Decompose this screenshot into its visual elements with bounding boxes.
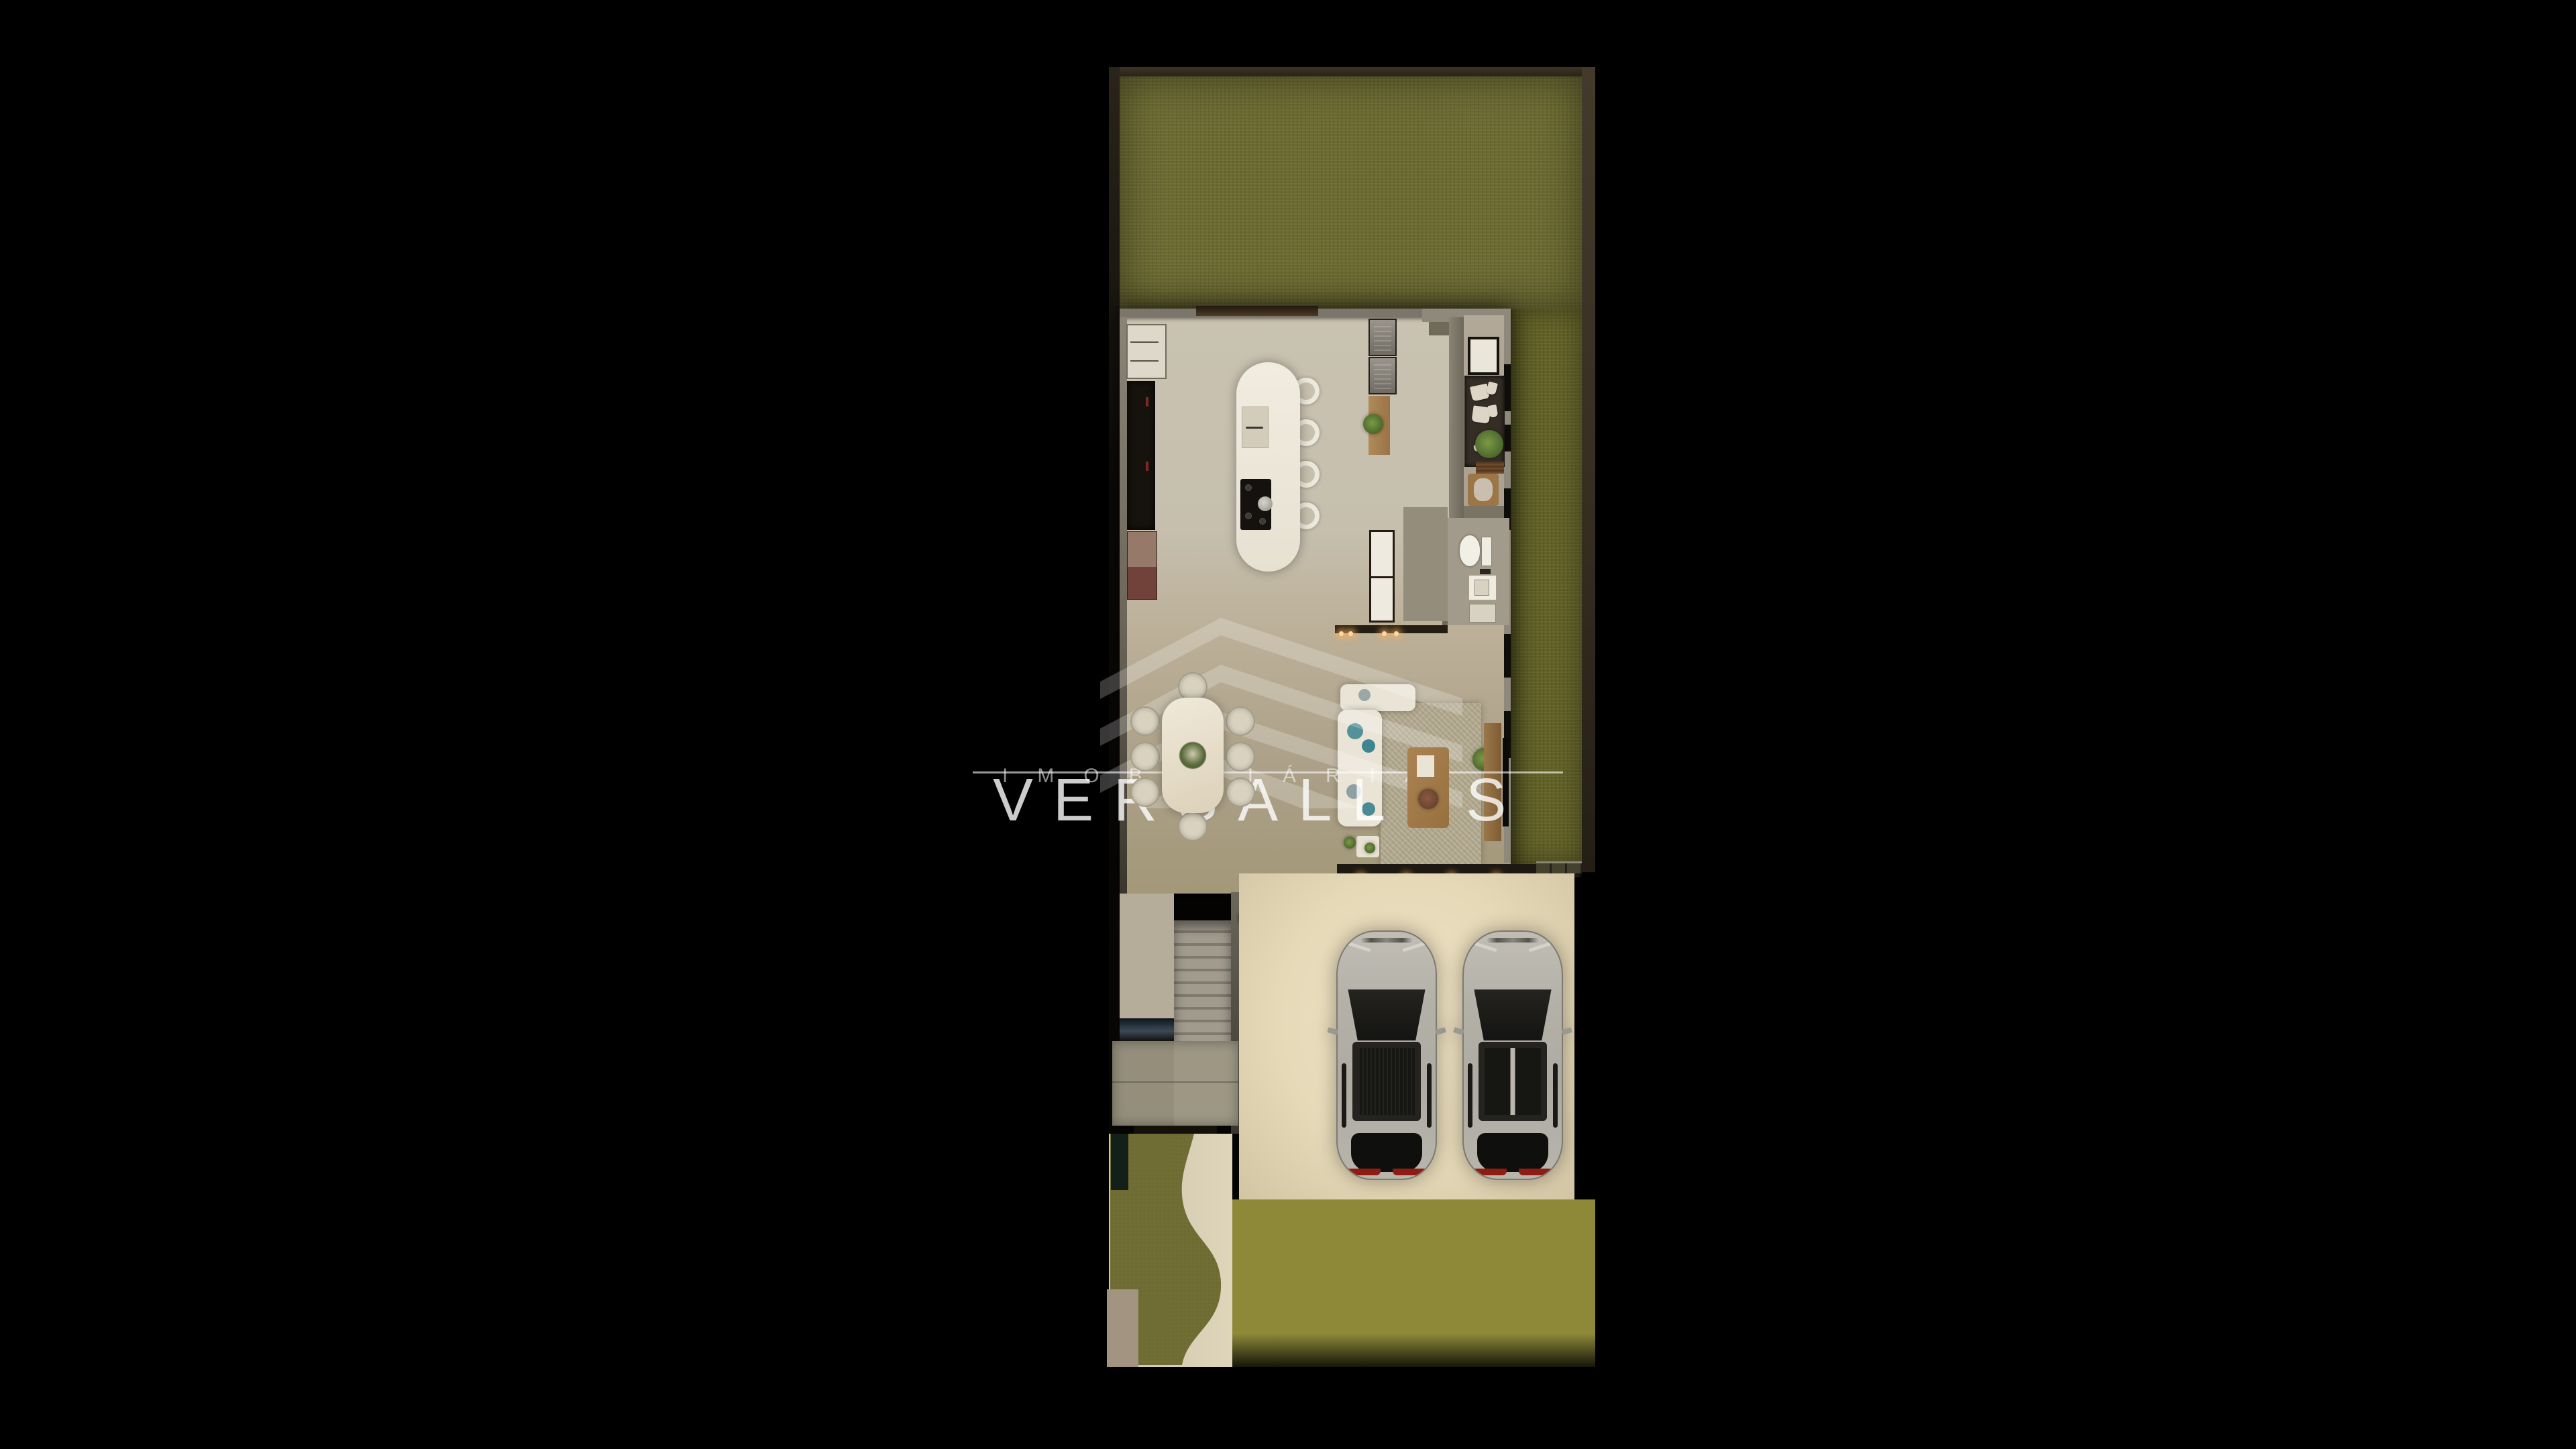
stair-landing xyxy=(1112,1041,1238,1126)
car-right xyxy=(1462,930,1563,1180)
car-body xyxy=(1336,930,1437,1180)
side-plant xyxy=(1364,843,1375,853)
car-body xyxy=(1462,930,1563,1180)
headlight xyxy=(1528,942,1552,953)
headlight xyxy=(1402,942,1426,953)
dining-chair xyxy=(1226,706,1255,736)
corridor-sink xyxy=(1468,474,1499,506)
dining-chair xyxy=(1130,706,1160,736)
backyard-lawn xyxy=(1120,76,1582,309)
oven-upper xyxy=(1368,319,1397,356)
stair-glass-band xyxy=(1120,1018,1174,1041)
burner xyxy=(1245,513,1252,519)
boundary-wall-left xyxy=(1109,67,1120,1134)
table-plant xyxy=(1418,789,1438,809)
island-faucet xyxy=(1246,427,1263,429)
rear-window xyxy=(1477,1133,1548,1172)
dining-chair xyxy=(1130,777,1160,807)
coffee-table xyxy=(1407,747,1449,828)
taillight xyxy=(1470,1169,1507,1175)
side-window-glass xyxy=(1342,1063,1346,1128)
bathroom-sink xyxy=(1468,574,1497,601)
sunroof xyxy=(1352,1042,1421,1121)
kitchen-cabinet xyxy=(1126,324,1167,379)
corridor-mat xyxy=(1476,462,1504,474)
hanging-garment xyxy=(1488,405,1499,418)
oven-lower xyxy=(1368,357,1397,394)
windshield xyxy=(1472,989,1553,1040)
bathroom-block-wall xyxy=(1403,507,1448,621)
burner xyxy=(1259,518,1266,525)
patio-door-lintel xyxy=(1196,306,1318,316)
burner xyxy=(1245,484,1252,491)
taillight xyxy=(1393,1169,1429,1175)
corridor-plant xyxy=(1475,430,1503,458)
garage-shadow xyxy=(1574,873,1595,1199)
rear-window xyxy=(1351,1133,1422,1172)
toilet xyxy=(1460,535,1480,566)
dining-chair xyxy=(1226,742,1255,771)
garden-planter xyxy=(1111,1134,1128,1190)
car-left xyxy=(1336,930,1437,1180)
boundary-wall-right xyxy=(1582,67,1595,872)
dining-table xyxy=(1162,698,1224,813)
cooking-pot xyxy=(1258,496,1273,511)
staircase-treads xyxy=(1174,920,1231,1058)
counter-plant xyxy=(1363,414,1383,434)
side-window-glass xyxy=(1553,1063,1558,1128)
side-window-glass xyxy=(1468,1063,1472,1128)
corridor-partition-wall xyxy=(1449,317,1464,519)
sideboard xyxy=(1127,531,1157,600)
car-grille xyxy=(1360,938,1413,943)
taillight xyxy=(1519,1169,1555,1175)
side-window xyxy=(1504,364,1511,411)
windshield xyxy=(1346,989,1427,1040)
car-grille xyxy=(1487,938,1539,943)
toilet-tank xyxy=(1481,537,1492,566)
side-window-glass xyxy=(1427,1063,1432,1128)
dining-chair xyxy=(1130,742,1160,771)
entry-hall-floor xyxy=(1120,894,1174,1018)
refrigerator xyxy=(1369,530,1395,623)
driveway-fade xyxy=(1232,1334,1595,1367)
side-plant xyxy=(1344,837,1356,849)
taillight xyxy=(1344,1169,1381,1175)
washer-box xyxy=(1468,337,1499,375)
kitchen-tall-cabinet xyxy=(1127,381,1155,530)
hanging-garment xyxy=(1486,382,1498,396)
headlight xyxy=(1473,942,1497,953)
utility-pad xyxy=(1107,1289,1138,1367)
headlight xyxy=(1347,942,1371,953)
dining-chair xyxy=(1178,812,1207,841)
table-centerpiece xyxy=(1179,742,1206,769)
table-tray xyxy=(1417,755,1434,777)
side-window xyxy=(1504,425,1511,451)
sunroof xyxy=(1479,1042,1547,1121)
corridor-lower-wall xyxy=(1464,506,1504,518)
kitchen-island xyxy=(1236,362,1300,572)
boundary-wall-top xyxy=(1109,67,1595,76)
dining-chair xyxy=(1226,777,1255,807)
floorplan-render: IMOBILIÁRIA VERSALLES xyxy=(0,0,2576,1449)
island-cooktop xyxy=(1240,479,1271,530)
side-window xyxy=(1504,634,1511,678)
